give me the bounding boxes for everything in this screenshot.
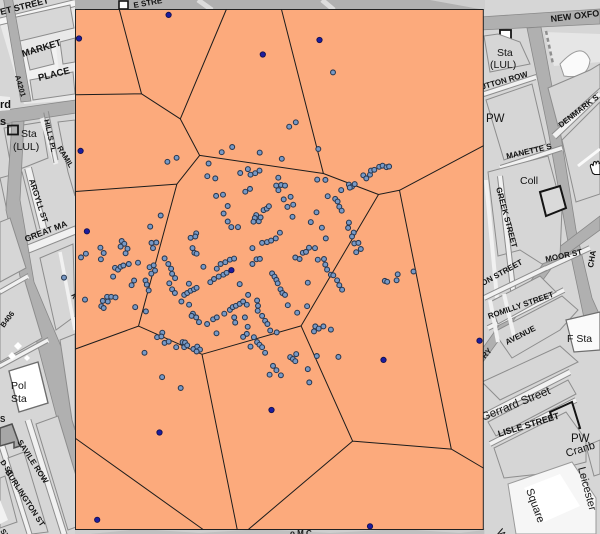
svg-text:Sta: Sta [497, 47, 513, 59]
svg-text:rd: rd [0, 99, 11, 111]
svg-text:Pol: Pol [11, 380, 26, 392]
svg-text:PW: PW [486, 113, 505, 125]
svg-text:F Sta: F Sta [567, 333, 592, 345]
svg-text:S: S [0, 415, 6, 424]
svg-text:Sta: Sta [11, 393, 27, 405]
svg-text:Coll: Coll [520, 175, 538, 187]
svg-text:(LUL): (LUL) [13, 141, 39, 153]
svg-text:(LUL): (LUL) [490, 59, 516, 71]
svg-text:Sta: Sta [21, 128, 37, 140]
svg-text:s: s [0, 116, 6, 128]
